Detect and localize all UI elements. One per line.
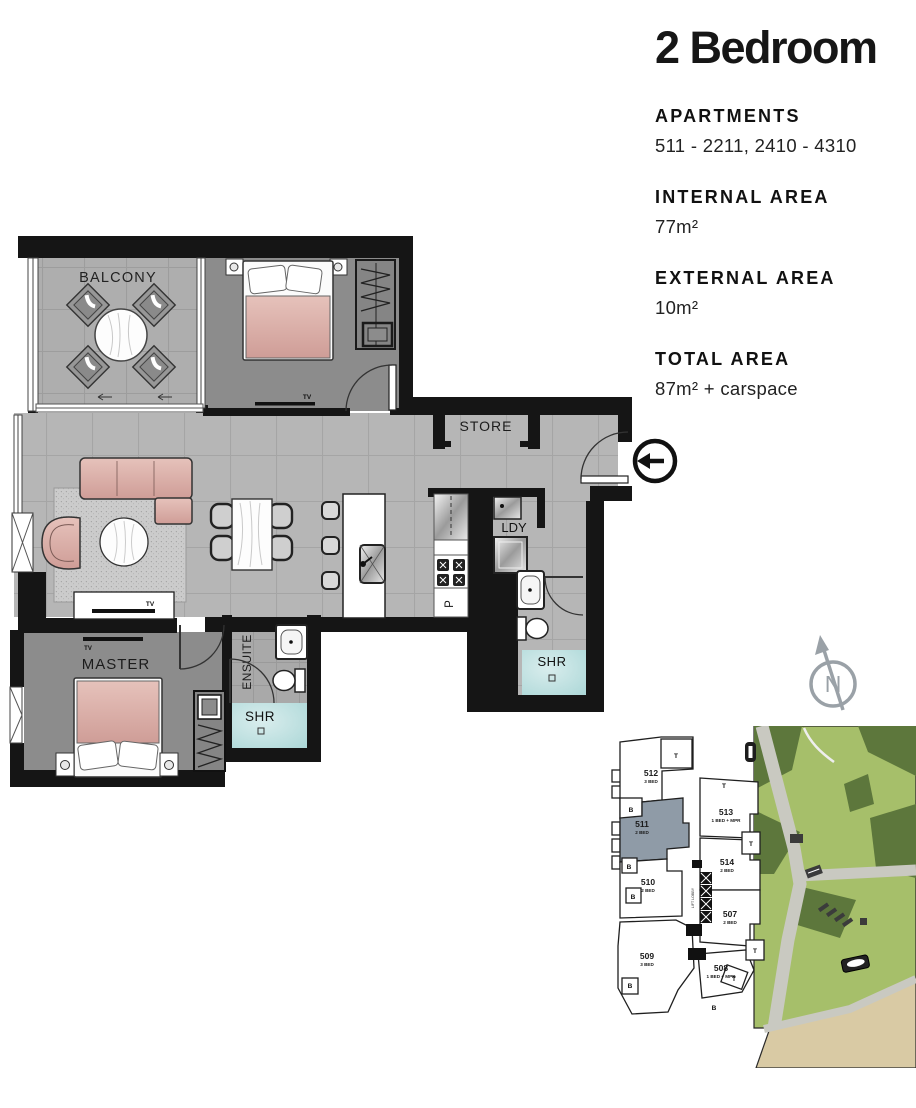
lift-lobby-label: LIFT LOBBY: [691, 887, 695, 908]
armchair: [42, 517, 80, 569]
balcony-label: BALCONY: [79, 270, 157, 286]
coffee-table: [100, 518, 148, 566]
key-plan: LIFT LOBBY 512 3 BED 511 2 BED 513 1 BED…: [606, 726, 916, 1068]
tv-label: TV: [303, 394, 312, 401]
floor-plan-page: 2 Bedroom APARTMENTS 511 - 2211, 2410 - …: [0, 0, 916, 1108]
page-title: 2 Bedroom: [655, 22, 913, 74]
pantry-label: P: [444, 600, 456, 608]
tv-label: TV: [146, 601, 155, 608]
tv-unit: TV: [74, 592, 174, 619]
tv-label: TV: [84, 646, 92, 652]
unit-513-number: 513: [719, 807, 733, 817]
unit-511-type: 2 BED: [635, 830, 649, 835]
bedroom2-door: [389, 365, 396, 410]
shower-label: SHR: [538, 654, 567, 669]
unit-507-type: 2 BED: [723, 920, 737, 925]
stool: [322, 537, 339, 554]
bed: [243, 261, 333, 360]
terrace-marker: T: [753, 948, 757, 955]
bed: [74, 678, 162, 777]
entry-door: [581, 476, 628, 483]
unit-511-number: 511: [635, 819, 649, 829]
north-arrowhead-icon: [815, 635, 829, 655]
master-label: MASTER: [82, 656, 151, 673]
balcony-marker: B: [631, 894, 636, 901]
balcony-marker: B: [627, 864, 632, 871]
apartments-value: 511 - 2211, 2410 - 4310: [655, 135, 913, 157]
entry-arrow-icon: [635, 441, 675, 481]
terrace-marker: T: [722, 783, 726, 790]
balcony-marker: B: [712, 1005, 717, 1012]
unit-510-number: 510: [641, 877, 655, 887]
balcony-marker: B: [628, 983, 633, 990]
north-arrow: N: [798, 630, 888, 740]
stool: [322, 502, 339, 519]
laundry-label: LDY: [501, 520, 527, 535]
unit-512-type: 3 BED: [644, 779, 658, 784]
terrace-marker: T: [732, 976, 736, 983]
wardrobe: [194, 691, 225, 771]
terrace-marker: T: [674, 753, 678, 760]
unit-514-number: 514: [720, 857, 734, 867]
unit-507-number: 507: [723, 909, 737, 919]
tv: [255, 402, 315, 406]
basin: [276, 625, 307, 659]
stool: [322, 572, 339, 589]
floor-plan: BALCONY TV: [0, 225, 700, 800]
internal-area-label: INTERNAL AREA: [655, 187, 913, 208]
unit-509-number: 509: [640, 951, 654, 961]
north-label: N: [825, 671, 842, 697]
unit-510-type: 2 BED: [641, 888, 655, 893]
unit-513-type: 1 BED + MPR: [712, 818, 742, 823]
tv: [83, 637, 143, 641]
unit-512-number: 512: [644, 768, 658, 778]
shower-label: SHR: [245, 709, 275, 724]
building-footprint: [612, 737, 764, 1026]
outdoor-table: [95, 309, 147, 361]
park: [754, 726, 916, 1068]
unit-508-number: 508: [714, 963, 728, 973]
toilet: [273, 669, 305, 692]
washer: [494, 497, 521, 519]
info-section-apartments: APARTMENTS 511 - 2211, 2410 - 4310: [655, 106, 913, 157]
balcony-marker: B: [629, 807, 634, 814]
apartments-label: APARTMENTS: [655, 106, 913, 127]
unit-514-type: 2 BED: [720, 868, 734, 873]
wardrobe: [356, 260, 395, 349]
sink: [360, 545, 385, 583]
terrace-marker: T: [749, 841, 753, 848]
cooktop: [434, 555, 468, 588]
unit-509: [618, 920, 694, 1014]
basin: [517, 571, 544, 609]
unit-509-type: 3 BED: [640, 962, 654, 967]
store-label: STORE: [460, 418, 513, 434]
counter: [434, 540, 468, 555]
toilet: [517, 617, 548, 640]
